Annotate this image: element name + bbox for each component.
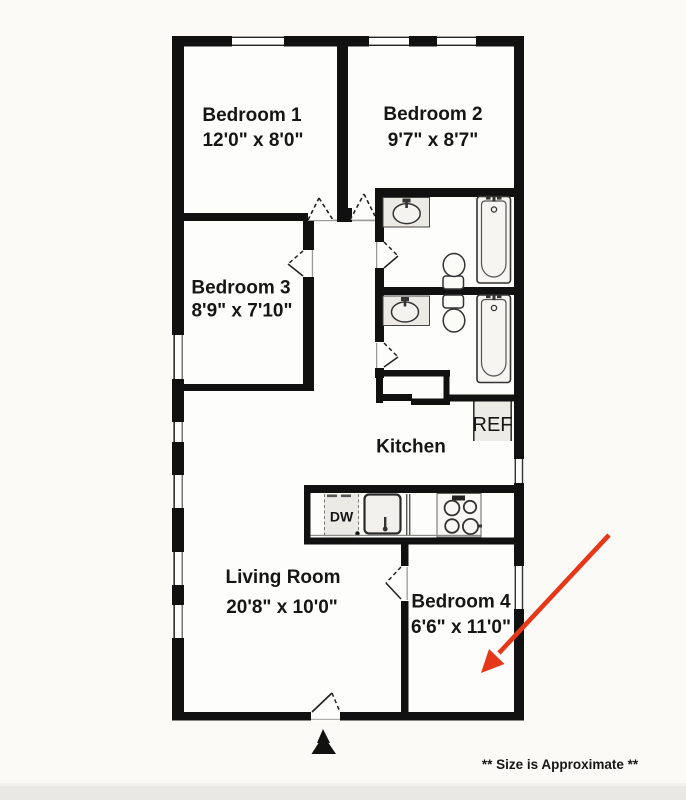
svg-text:** Size is Approximate **: ** Size is Approximate ** <box>482 757 639 772</box>
svg-text:Bedroom 4: Bedroom 4 <box>411 592 511 613</box>
svg-text:Living Room: Living Room <box>225 567 340 588</box>
svg-text:9'7" x 8'7": 9'7" x 8'7" <box>388 130 478 151</box>
svg-text:Bedroom 1: Bedroom 1 <box>202 105 302 126</box>
svg-text:6'6" x 11'0": 6'6" x 11'0" <box>411 617 511 638</box>
svg-text:DW: DW <box>330 509 354 525</box>
svg-text:Bedroom 3: Bedroom 3 <box>191 278 290 299</box>
svg-text:12'0" x 8'0": 12'0" x 8'0" <box>202 130 303 151</box>
svg-text:Bedroom 2: Bedroom 2 <box>383 104 482 125</box>
svg-text:REF: REF <box>473 414 513 436</box>
svg-text:Kitchen: Kitchen <box>376 437 446 458</box>
svg-text:8'9" x 7'10": 8'9" x 7'10" <box>191 301 292 322</box>
svg-text:20'8" x 10'0": 20'8" x 10'0" <box>226 597 338 618</box>
